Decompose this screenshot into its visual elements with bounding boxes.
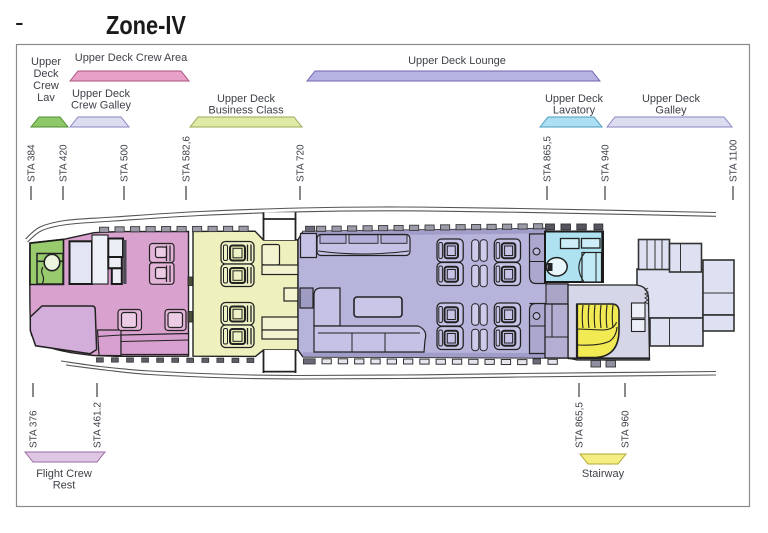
svg-text:STA 384: STA 384	[27, 144, 38, 182]
svg-text:Crew Galley: Crew Galley	[71, 100, 131, 112]
svg-text:Upper: Upper	[31, 56, 61, 68]
svg-text:STA 500: STA 500	[120, 144, 131, 182]
svg-text:-: -	[15, 7, 24, 37]
svg-text:STA 960: STA 960	[621, 410, 632, 448]
svg-text:STA 1100: STA 1100	[729, 139, 740, 182]
svg-text:STA 582,6: STA 582,6	[182, 136, 193, 182]
svg-text:Upper Deck: Upper Deck	[217, 93, 276, 105]
svg-text:Stairway: Stairway	[582, 468, 625, 480]
svg-text:STA 720: STA 720	[296, 144, 307, 182]
svg-text:Upper Deck: Upper Deck	[72, 88, 131, 100]
svg-text:Upper Deck: Upper Deck	[545, 93, 604, 105]
svg-text:Upper Deck: Upper Deck	[642, 93, 701, 105]
svg-text:STA 461.2: STA 461.2	[93, 402, 104, 448]
svg-text:Business Class: Business Class	[208, 105, 284, 117]
svg-text:Rest: Rest	[53, 480, 76, 492]
svg-text:Flight Crew: Flight Crew	[36, 468, 92, 480]
svg-text:STA 865,5: STA 865,5	[575, 402, 586, 448]
svg-text:Upper Deck Lounge: Upper Deck Lounge	[408, 55, 506, 67]
svg-text:Lavatory: Lavatory	[553, 105, 596, 117]
svg-text:STA 865,5: STA 865,5	[543, 136, 554, 182]
svg-text:Upper Deck Crew Area: Upper Deck Crew Area	[75, 52, 188, 64]
svg-text:Galley: Galley	[655, 105, 687, 117]
svg-text:Lav: Lav	[37, 92, 55, 104]
svg-text:Zone-IV: Zone-IV	[106, 10, 187, 40]
svg-text:Crew: Crew	[33, 80, 59, 92]
svg-text:Deck: Deck	[33, 68, 59, 80]
svg-text:STA 420: STA 420	[59, 144, 70, 182]
svg-text:STA 940: STA 940	[601, 144, 612, 182]
svg-text:STA 376: STA 376	[29, 410, 40, 448]
